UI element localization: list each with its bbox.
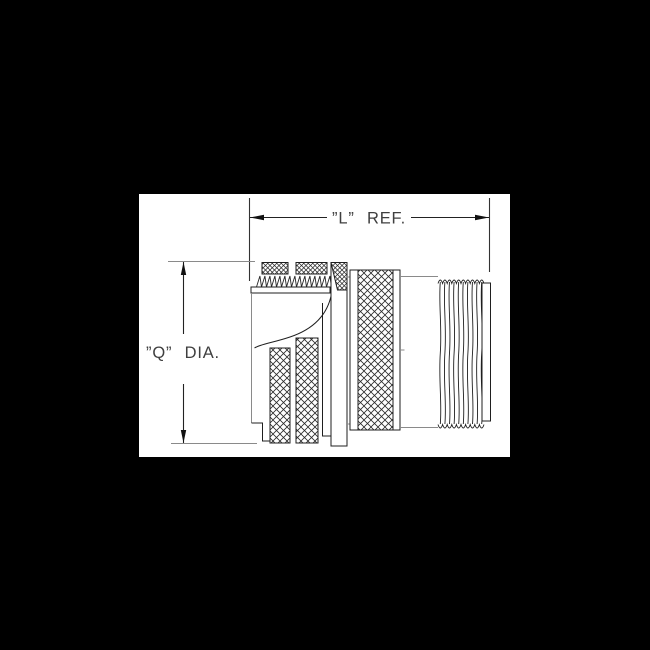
nut-left-rim xyxy=(350,270,358,430)
body-top-band xyxy=(251,287,330,293)
nut-right-rim xyxy=(393,270,400,430)
length-dimension-label: ”L” REF. xyxy=(332,210,406,228)
boot-groove-band xyxy=(296,338,318,443)
blueprint-svg: ”L” REF. ”Q” DIA. xyxy=(0,0,650,650)
drawing-canvas: ”L” REF. ”Q” DIA. xyxy=(0,0,650,650)
nut-knurl xyxy=(358,270,393,430)
flange-ring xyxy=(331,263,350,447)
diameter-dimension-label: ”Q” DIA. xyxy=(146,344,220,362)
top-fin-block xyxy=(296,263,327,275)
thread-runout xyxy=(482,283,491,421)
boot-groove-band xyxy=(270,348,290,443)
top-fin-block xyxy=(262,263,288,275)
coupling-nut xyxy=(350,270,400,430)
